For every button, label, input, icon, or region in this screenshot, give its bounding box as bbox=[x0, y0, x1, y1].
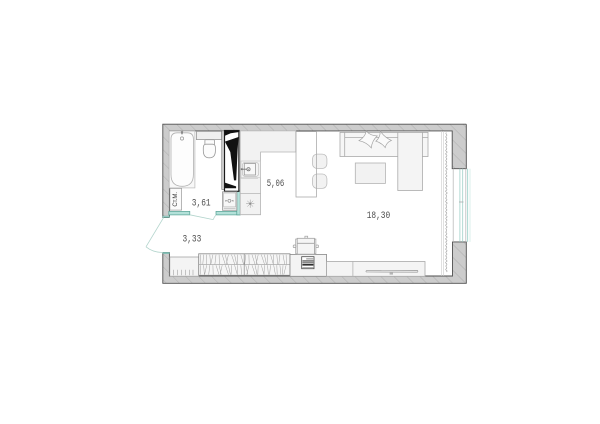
svg-text:5,06: 5,06 bbox=[267, 179, 285, 190]
svg-text:3,33: 3,33 bbox=[183, 235, 202, 246]
svg-text:Ст.М.: Ст.М. bbox=[173, 192, 179, 207]
svg-text:3,61: 3,61 bbox=[192, 198, 211, 209]
svg-text:18,30: 18,30 bbox=[367, 211, 391, 222]
